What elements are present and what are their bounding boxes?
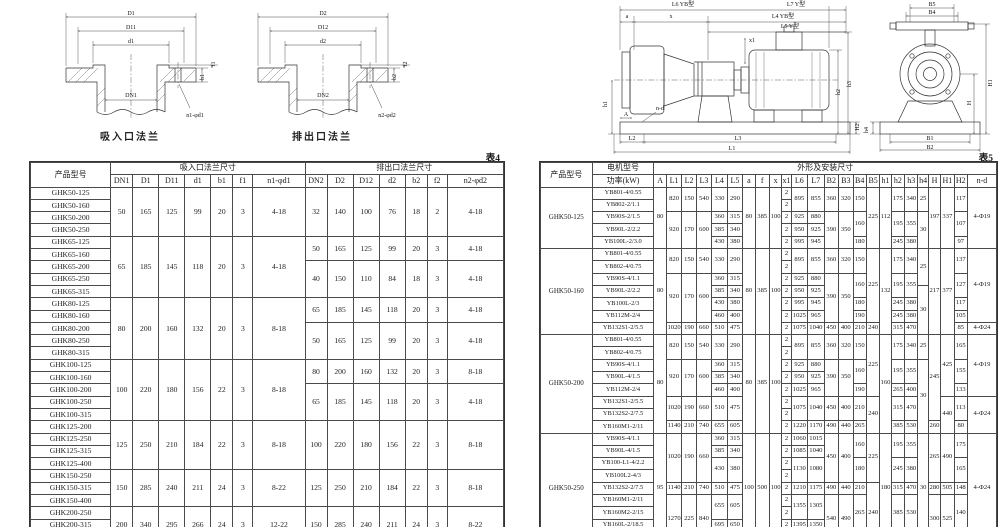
- data-cell: 2: [782, 298, 791, 310]
- data-cell: 170: [682, 273, 696, 322]
- dim-label: H1: [988, 79, 994, 86]
- data-cell: 20: [211, 187, 233, 236]
- motor-cell: YB801-4/0.55: [592, 249, 654, 261]
- data-cell: 380: [905, 310, 918, 322]
- data-cell: 285: [133, 470, 159, 507]
- data-cell: 3: [427, 298, 447, 323]
- data-cell: 80: [305, 359, 327, 384]
- data-cell: 2: [782, 495, 791, 507]
- data-cell: 2: [782, 359, 791, 371]
- data-cell: 165: [327, 236, 353, 261]
- model-cell: GHK50-200: [31, 212, 111, 224]
- header-cell: H2: [954, 175, 967, 187]
- data-cell: 125: [305, 470, 327, 507]
- motor-cell: YB802-4/0.75: [592, 347, 654, 359]
- suction-flange-caption: 吸入口法兰: [100, 128, 160, 143]
- data-cell: 245: [891, 310, 904, 322]
- data-cell: 3: [233, 236, 253, 297]
- data-cell: 360: [712, 212, 727, 224]
- data-cell: 2: [782, 507, 791, 519]
- data-cell: 920: [666, 273, 681, 322]
- motor-cell: YB100L-2/3: [592, 298, 654, 310]
- data-cell: 1130: [791, 458, 808, 483]
- data-cell: 22: [211, 421, 233, 470]
- model-cell: GHK125-250: [31, 433, 111, 445]
- data-cell: 220: [327, 421, 353, 470]
- data-cell: 430: [712, 458, 727, 483]
- table-row: GHK50-160YB801-4/0.558082015054033029080…: [541, 249, 997, 261]
- data-cell: 195: [891, 359, 904, 384]
- data-cell: 945: [808, 298, 825, 310]
- data-cell: 24: [211, 507, 233, 527]
- data-cell: 30: [918, 212, 928, 249]
- data-cell: 190: [853, 310, 866, 322]
- data-cell: 470: [905, 482, 918, 494]
- data-cell: 25: [918, 187, 928, 212]
- data-cell: 25: [918, 335, 928, 360]
- data-cell: 2: [782, 199, 791, 211]
- data-cell: 1395: [791, 519, 808, 527]
- data-cell: 100: [305, 421, 327, 470]
- data-cell: 40: [305, 261, 327, 298]
- header-cell: h3: [905, 175, 918, 187]
- data-cell: 385: [891, 421, 904, 433]
- data-cell: 2: [782, 408, 791, 420]
- discharge-flange-drawing: D2D12d2DN2b2f2n2-φd2: [240, 4, 410, 122]
- data-cell: 150: [853, 187, 866, 212]
- data-cell: 895: [791, 187, 808, 212]
- data-cell: 360: [712, 359, 727, 371]
- header-cell: d2: [379, 175, 405, 187]
- data-cell: 965: [808, 384, 825, 396]
- data-cell: 80: [654, 187, 666, 248]
- data-cell: 490: [824, 482, 838, 494]
- data-cell: 1140: [666, 482, 681, 494]
- motor-cell: YB132S2-2/7.5: [592, 482, 654, 494]
- data-cell: 220: [133, 359, 159, 420]
- data-cell: 3: [427, 359, 447, 384]
- data-cell: 380: [905, 458, 918, 483]
- data-cell: 600: [696, 359, 711, 396]
- data-cell: 655: [712, 495, 727, 520]
- header-cell: n1-φd1: [253, 175, 305, 187]
- data-cell: 1020: [666, 433, 681, 482]
- data-cell: 100: [769, 187, 781, 248]
- dim-label: b2: [392, 74, 398, 80]
- data-cell: 1175: [808, 482, 825, 494]
- header-cell: H: [928, 175, 940, 187]
- data-cell: 100: [769, 249, 781, 335]
- data-cell: 1040: [808, 396, 825, 421]
- data-cell: 3: [427, 421, 447, 470]
- data-cell: 385: [712, 372, 727, 384]
- data-cell: 300: [928, 495, 940, 527]
- data-cell: 380: [905, 236, 918, 248]
- data-cell: 180: [353, 421, 379, 470]
- data-cell: 148: [954, 482, 967, 494]
- data-cell: 540: [696, 187, 711, 212]
- dim-label: b1: [200, 74, 206, 80]
- data-cell: 490: [824, 421, 838, 433]
- header-cell: h4: [918, 175, 928, 187]
- data-cell: 2: [782, 384, 791, 396]
- motor-cell: YB112M-2/4: [592, 384, 654, 396]
- data-cell: 385: [891, 495, 904, 527]
- header-dims-group: 外形及安装尺寸: [654, 163, 997, 175]
- table-row: GHK50-200YB801-4/0.558082015054033029080…: [541, 335, 997, 347]
- data-cell: 470: [905, 322, 918, 334]
- data-cell: 385: [712, 285, 727, 297]
- data-cell: 4-Φ19: [967, 335, 996, 396]
- dim-label: D1: [127, 11, 134, 17]
- data-cell: 925: [808, 224, 825, 236]
- header-cell: D2: [327, 175, 353, 187]
- data-cell: 240: [159, 470, 185, 507]
- data-cell: 1075: [791, 322, 808, 334]
- dim-label: L4 YB型: [772, 12, 794, 20]
- data-cell: 1075: [791, 396, 808, 421]
- data-cell: 150: [682, 187, 696, 212]
- dim-label: d1: [128, 39, 134, 45]
- motor-cell: YB801-4/0.55: [592, 187, 654, 199]
- data-cell: 18: [405, 261, 427, 298]
- data-cell: 156: [379, 421, 405, 470]
- data-cell: 127: [954, 273, 967, 298]
- data-cell: 340: [727, 285, 742, 297]
- data-cell: 1270: [666, 495, 681, 527]
- dim-label: h3: [847, 81, 853, 87]
- data-cell: 425: [941, 335, 954, 396]
- data-cell: 25: [918, 249, 928, 286]
- data-cell: 4-18: [447, 187, 503, 236]
- model-cell: GHK125-200: [31, 421, 111, 433]
- header-cell: L5: [727, 175, 742, 187]
- data-cell: 660: [696, 433, 711, 482]
- data-cell: 350: [839, 359, 853, 396]
- data-cell: 3: [427, 507, 447, 527]
- motor-cell: YB90L-2/2.2: [592, 224, 654, 236]
- data-cell: 360: [824, 335, 838, 360]
- data-cell: 650: [727, 519, 742, 527]
- header-product: 产品型号: [31, 163, 111, 188]
- data-cell: 290: [727, 187, 742, 212]
- header-cell: n2-φd2: [447, 175, 503, 187]
- motor-cell: YB90S-4/1.1: [592, 433, 654, 445]
- data-cell: 2: [782, 224, 791, 236]
- data-cell: 50: [111, 187, 133, 236]
- dim-label: A: [624, 112, 629, 118]
- data-cell: 340: [133, 507, 159, 527]
- data-cell: 2: [782, 445, 791, 457]
- data-cell: 225: [866, 249, 879, 323]
- data-cell: 400: [727, 310, 742, 322]
- table-row: GHK80-125802001601322038-186518514511820…: [31, 298, 504, 310]
- data-cell: 18: [405, 187, 427, 236]
- data-cell: 925: [808, 285, 825, 297]
- data-cell: 4-18: [447, 261, 503, 298]
- data-cell: 170: [682, 212, 696, 249]
- data-cell: 3: [233, 507, 253, 527]
- motor-cell: YB132S2-2/7.5: [592, 408, 654, 420]
- dim-label: n1-φd1: [186, 113, 203, 119]
- data-cell: 530: [905, 421, 918, 433]
- data-cell: 2: [782, 433, 791, 445]
- dim-label: B4: [928, 10, 935, 16]
- data-cell: 3: [233, 359, 253, 420]
- data-cell: 175: [891, 249, 904, 274]
- header-cell: L2: [682, 175, 696, 187]
- data-cell: 32: [305, 187, 327, 236]
- data-cell: 360: [824, 187, 838, 212]
- dim-label: B1: [926, 136, 933, 142]
- data-cell: 540: [824, 495, 838, 527]
- data-cell: 22: [211, 359, 233, 420]
- data-cell: 175: [891, 335, 904, 360]
- header-cell: b2: [405, 175, 427, 187]
- data-cell: 211: [379, 507, 405, 527]
- header-cell: f: [755, 175, 769, 187]
- data-cell: 3: [233, 187, 253, 236]
- data-cell: 133: [954, 384, 967, 396]
- data-cell: 2: [782, 322, 791, 334]
- data-cell: 1210: [791, 482, 808, 494]
- data-cell: 450: [824, 322, 838, 334]
- model-cell: GHK200-315: [31, 519, 111, 527]
- data-cell: 8-18: [253, 421, 305, 470]
- data-cell: 165: [133, 187, 159, 236]
- data-cell: 185: [133, 236, 159, 297]
- dim-label: D12: [318, 25, 328, 31]
- data-cell: 76: [379, 187, 405, 236]
- data-cell: 184: [185, 421, 211, 470]
- data-cell: 117: [954, 298, 967, 310]
- data-cell: 8-18: [447, 421, 503, 470]
- data-cell: 200: [133, 298, 159, 359]
- data-cell: 250: [133, 421, 159, 470]
- data-cell: 185: [327, 298, 353, 323]
- data-cell: 20: [211, 298, 233, 359]
- data-cell: 3: [233, 421, 253, 470]
- data-cell: 360: [712, 273, 727, 285]
- dim-label: h1: [603, 101, 609, 107]
- data-cell: 285: [327, 507, 353, 527]
- data-cell: 245: [891, 298, 904, 310]
- data-cell: 225: [682, 495, 696, 527]
- data-cell: 510: [712, 482, 727, 494]
- motor-cell: YB90S-2/1.5: [592, 212, 654, 224]
- motor-cell: YB90L-2/2.2: [592, 285, 654, 297]
- model-cell: GHK100-125: [31, 359, 111, 371]
- data-cell: 1355: [791, 495, 808, 520]
- dim-label: L2: [629, 136, 636, 142]
- data-cell: 80: [743, 249, 755, 335]
- data-cell: 2: [782, 347, 791, 359]
- data-cell: 20: [405, 359, 427, 384]
- dim-label: x: [670, 14, 673, 20]
- data-cell: 330: [712, 187, 727, 212]
- data-cell: 925: [791, 359, 808, 371]
- data-cell: 315: [727, 212, 742, 224]
- data-cell: 118: [379, 298, 405, 323]
- header-cell: D11: [159, 175, 185, 187]
- data-cell: 12-22: [253, 507, 305, 527]
- data-cell: 605: [727, 495, 742, 520]
- data-cell: 340: [727, 224, 742, 236]
- data-cell: 8-18: [447, 359, 503, 384]
- dim-label: n-d: [656, 106, 664, 112]
- data-cell: 840: [696, 495, 711, 527]
- data-cell: 265: [891, 384, 904, 396]
- data-cell: 8-18: [253, 359, 305, 420]
- header-cell: DN1: [111, 175, 133, 187]
- data-cell: 8-22: [253, 470, 305, 507]
- dim-label: H: [967, 100, 973, 105]
- data-cell: 1025: [791, 310, 808, 322]
- data-cell: 99: [185, 187, 211, 236]
- data-cell: 4-18: [253, 236, 305, 297]
- flange-table-body: 产品型号吸入口法兰尺寸排出口法兰尺寸DN1D1D11d1b1f1n1-φd1DN…: [31, 163, 504, 527]
- data-cell: 540: [696, 335, 711, 360]
- header-cell: B2: [824, 175, 838, 187]
- data-cell: 4-18: [447, 236, 503, 261]
- data-cell: 385: [755, 187, 769, 248]
- motor-cell: YB90L-4/1.5: [592, 445, 654, 457]
- data-cell: 2: [782, 285, 791, 297]
- data-cell: 125: [353, 322, 379, 359]
- data-cell: 50: [305, 236, 327, 261]
- data-cell: 530: [905, 495, 918, 527]
- data-cell: 100: [353, 187, 379, 236]
- data-cell: 99: [379, 322, 405, 359]
- data-cell: 22: [405, 470, 427, 507]
- data-cell: 113: [954, 396, 967, 421]
- data-cell: 600: [696, 212, 711, 249]
- motor-cell: YB90S-4/1.1: [592, 273, 654, 285]
- data-cell: 20: [405, 298, 427, 323]
- dim-label: n2-φd2: [378, 113, 395, 119]
- data-cell: 280: [928, 482, 940, 494]
- data-cell: 22: [405, 421, 427, 470]
- table-row: GHK50-250YB90S-4/1.195102019066036031510…: [541, 433, 997, 445]
- data-cell: 460: [712, 310, 727, 322]
- dim-label: a: [626, 14, 629, 20]
- data-cell: 195: [891, 273, 904, 298]
- data-cell: 475: [727, 322, 742, 334]
- data-cell: 855: [808, 249, 825, 274]
- data-cell: 2: [782, 249, 791, 261]
- data-cell: 20: [405, 236, 427, 261]
- header-cell: h2: [891, 175, 904, 187]
- dim-label: x1: [749, 38, 755, 44]
- header-cell: L7: [808, 175, 825, 187]
- data-cell: 380: [727, 298, 742, 310]
- data-cell: 155: [954, 359, 967, 384]
- data-cell: 920: [666, 212, 681, 249]
- motor-cell: YB100-L1-4/2.2: [592, 458, 654, 470]
- data-cell: 4-Φ24: [967, 433, 996, 527]
- table-row: GHK50-12550165125992034-1832140100761824…: [31, 187, 504, 199]
- model-cell: GHK80-315: [31, 347, 111, 359]
- table-row: GHK65-125651851451182034-185016512599203…: [31, 236, 504, 248]
- data-cell: 184: [379, 470, 405, 507]
- motor-cell: YB801-4/0.55: [592, 335, 654, 347]
- data-cell: 355: [905, 273, 918, 298]
- pump-front-view-drawing: B5B4HH1h4B1B2: [862, 0, 1000, 158]
- header-cell: DN2: [305, 175, 327, 187]
- data-cell: 140: [327, 187, 353, 236]
- data-cell: 145: [353, 384, 379, 421]
- table4-panel: 表4 产品型号吸入口法兰尺寸排出口法兰尺寸DN1D1D11d1b1f1n1-φd…: [30, 150, 504, 527]
- data-cell: 315: [727, 433, 742, 445]
- data-cell: 4-Φ19: [967, 249, 996, 323]
- data-cell: 170: [682, 359, 696, 396]
- motor-cell: YB802-4/0.75: [592, 261, 654, 273]
- data-cell: 190: [853, 384, 866, 396]
- data-cell: 400: [839, 433, 853, 482]
- model-cell: GHK100-160: [31, 372, 111, 384]
- data-cell: 156: [185, 359, 211, 420]
- data-cell: 380: [905, 298, 918, 310]
- data-cell: 385: [712, 224, 727, 236]
- data-cell: 1060: [791, 433, 808, 445]
- model-cell: GHK125-400: [31, 458, 111, 470]
- data-cell: 195: [891, 212, 904, 237]
- data-cell: 150: [111, 470, 133, 507]
- data-cell: 175: [954, 433, 967, 458]
- data-cell: 995: [791, 236, 808, 248]
- data-cell: 2: [782, 482, 791, 494]
- data-cell: 1015: [808, 433, 825, 445]
- data-cell: 150: [305, 507, 327, 527]
- data-cell: 855: [808, 335, 825, 360]
- data-cell: 660: [696, 396, 711, 421]
- data-cell: 2: [782, 273, 791, 285]
- data-cell: 99: [379, 236, 405, 261]
- data-cell: 65: [305, 298, 327, 323]
- data-cell: 197: [928, 187, 940, 248]
- data-cell: 80: [954, 421, 967, 433]
- data-cell: 920: [666, 359, 681, 396]
- model-cell: GHK50-250: [31, 224, 111, 236]
- data-cell: 3: [233, 298, 253, 359]
- data-cell: 925: [791, 212, 808, 224]
- data-cell: 80: [111, 298, 133, 359]
- model-cell: GHK80-160: [31, 310, 111, 322]
- data-cell: 360: [712, 433, 727, 445]
- table-row: GHK200-25020034029526624312-221502852402…: [31, 507, 504, 519]
- data-cell: 295: [159, 507, 185, 527]
- data-cell: 30: [918, 359, 928, 433]
- dim-label: L5 Y型: [781, 22, 799, 30]
- data-cell: 145: [353, 298, 379, 323]
- data-cell: 250: [327, 470, 353, 507]
- dim-label: D2: [319, 11, 326, 17]
- data-cell: 100: [743, 433, 755, 527]
- data-cell: 110: [353, 261, 379, 298]
- data-cell: 2: [782, 372, 791, 384]
- data-cell: 150: [682, 249, 696, 274]
- data-cell: 4-18: [447, 322, 503, 359]
- data-cell: 330: [712, 249, 727, 274]
- dim-label: h4: [864, 127, 870, 133]
- header-product: 产品型号: [541, 163, 593, 188]
- motor-cell: YB132S1-2/5.5: [592, 396, 654, 408]
- data-cell: 945: [808, 236, 825, 248]
- data-cell: 355: [905, 212, 918, 237]
- data-cell: 240: [866, 322, 879, 334]
- data-cell: 490: [839, 495, 853, 527]
- data-cell: 265: [928, 433, 940, 482]
